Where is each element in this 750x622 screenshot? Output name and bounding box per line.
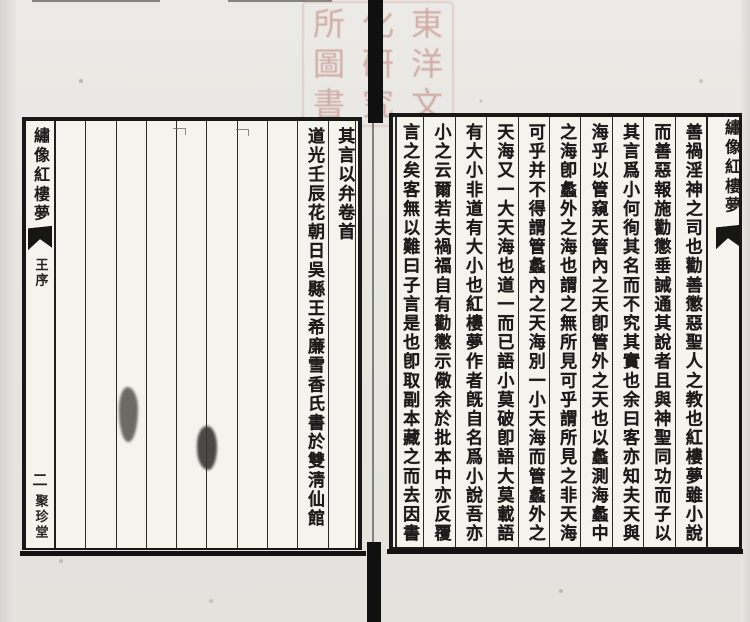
paper-speckles (0, 0, 2, 2)
empty-column (177, 121, 207, 548)
fold-bar-bottom (367, 542, 381, 622)
empty-column (207, 121, 237, 548)
fishtail-icon (716, 225, 739, 250)
scan-top-line (32, 0, 160, 2)
text-column: 之海卽蠡外之海也謂之無所見可乎謂所見之非天海 (550, 117, 581, 547)
book-scan: 東 洋 文 化 研 究 所 圖 書 繡像紅樓夢 王序 二 聚珍堂 (0, 0, 750, 622)
empty-column (268, 121, 298, 548)
text-column: 小之云爾若夫禍福自有勸懲示儆余於批本中亦反覆 (424, 117, 455, 547)
text-column: 海乎以管窺天管內之天卽管外之天也以蠡測海蠡中 (581, 117, 612, 547)
text-column-signature: 道光壬辰花朝日吳縣王希廉雪香氏書於雙淸仙館 (298, 121, 328, 548)
text-column: 而善惡報施勸懲垂誡通其說者且與神聖同功而子以 (644, 117, 675, 547)
empty-column (86, 121, 116, 548)
text-column: 言之矣客無以難曰子言是也卽取副本藏之而去因書 (393, 117, 424, 547)
empty-column (238, 121, 268, 548)
banxin-section-label: 王序 (34, 258, 47, 288)
page-number: 二 (32, 469, 47, 490)
text-column: 善禍淫神之司也勸善懲惡聖人之教也紅樓夢雖小說 (676, 117, 706, 547)
frame-inner-line (395, 117, 397, 547)
column-text: 言之矣客無以難曰子言是也卽取副本藏之而去因書 (399, 123, 417, 543)
banxin-book-title-clipped: 繡像紅樓夢 (723, 119, 739, 216)
empty-column (147, 121, 177, 548)
column-grid: 道光壬辰花朝日吳縣王希廉雪香氏書於雙淸仙館 其言以弁卷首 (56, 121, 358, 548)
left-page: 繡像紅樓夢 王序 二 聚珍堂 道光壬辰花朝日吳縣王希廉雪香氏書於雙淸仙館 其言以… (22, 117, 362, 550)
column-text: 小之云爾若夫禍福自有勸懲示儆余於批本中亦反覆 (431, 123, 449, 543)
empty-column (117, 121, 147, 548)
seal-column: 東 洋 文 (406, 5, 448, 123)
ink-smudge (197, 426, 217, 470)
fold-bar-top (368, 0, 383, 123)
column-text: 天海又一大天海也道一而已語小莫破卽語大莫載語 (494, 123, 512, 543)
left-page-bottom-rule (20, 551, 366, 556)
scan-edge-right (741, 0, 750, 622)
publisher-label: 聚珍堂 (34, 494, 47, 541)
column-text: 善禍淫神之司也勸善懲惡聖人之教也紅樓夢雖小說 (682, 123, 700, 543)
frame-inner-line (355, 121, 357, 548)
column-text: 之海卽蠡外之海也謂之無所見可乎謂所見之非天海 (556, 123, 574, 543)
seal-column: 所 圖 書 (308, 5, 350, 123)
right-page: 言之矣客無以難曰子言是也卽取副本藏之而去因書 小之云爾若夫禍福自有勸懲示儆余於批… (389, 113, 742, 549)
scan-edge-left (0, 0, 16, 622)
column-text: 其言爲小何徇其名而不究其實也余曰客亦知夫天與 (619, 123, 637, 543)
seal-character: 東 (406, 5, 448, 43)
text-column: 天海又一大天海也道一而已語小莫破卽語大莫載語 (487, 117, 518, 547)
column-text: 可乎并不得謂管蠡內之天海別一小天海而管蠡外之 (525, 123, 543, 543)
empty-column (56, 121, 86, 548)
banxin-strip-left: 繡像紅樓夢 王序 二 聚珍堂 (26, 121, 56, 548)
right-page-bottom-rule (387, 549, 743, 554)
column-text: 其言以弁卷首 (334, 127, 352, 242)
seal-character: 所 (308, 5, 350, 43)
banxin-strip-right: 繡像紅樓夢 (706, 117, 739, 547)
seal-character: 洋 (406, 45, 448, 83)
faint-print-mark (173, 128, 186, 135)
column-text: 而善惡報施勸懲垂誡通其說者且與神聖同功而子以 (651, 123, 669, 543)
fishtail-icon (28, 226, 52, 251)
faint-print-mark (236, 129, 249, 136)
banxin-book-title: 繡像紅樓夢 (32, 127, 48, 224)
column-text: 道光壬辰花朝日吳縣王希廉雪香氏書於雙淸仙館 (304, 127, 322, 528)
column-text: 海乎以管窺天管內之天卽管外之天也以蠡測海蠡中 (588, 123, 606, 543)
text-column: 有大小非道有大小也紅樓夢作者旣自名爲小說吾亦 (456, 117, 487, 547)
text-column: 可乎并不得謂管蠡內之天海別一小天海而管蠡外之 (519, 117, 550, 547)
column-text: 有大小非道有大小也紅樓夢作者旣自名爲小說吾亦 (462, 123, 480, 543)
column-grid: 言之矣客無以難曰子言是也卽取副本藏之而去因書 小之云爾若夫禍福自有勸懲示儆余於批… (393, 117, 706, 547)
seal-character: 圖 (308, 45, 350, 83)
text-column: 其言爲小何徇其名而不究其實也余曰客亦知夫天與 (613, 117, 644, 547)
